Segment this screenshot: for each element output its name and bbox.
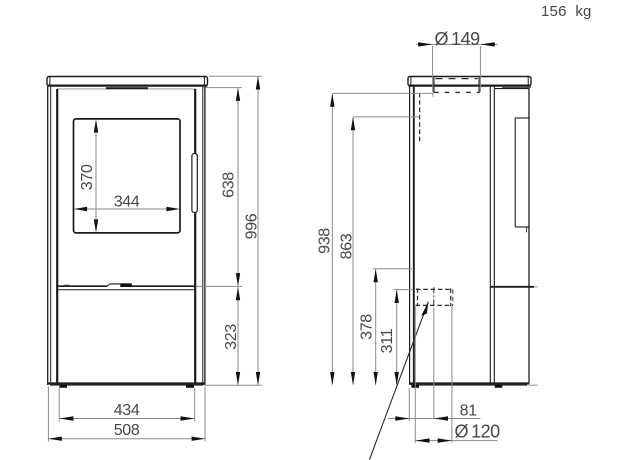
svg-text:996: 996 [243, 213, 260, 239]
svg-text:434: 434 [114, 402, 140, 419]
svg-text:311: 311 [379, 328, 396, 353]
svg-text:156 kg: 156 kg [541, 3, 592, 20]
svg-text:323: 323 [223, 324, 240, 350]
svg-text:378: 378 [358, 314, 375, 340]
svg-text:81: 81 [460, 402, 478, 419]
svg-text:863: 863 [339, 233, 356, 259]
svg-text:638: 638 [220, 172, 237, 198]
svg-text:344: 344 [114, 193, 140, 210]
svg-text:Ø 120: Ø 120 [455, 422, 501, 442]
svg-text:938: 938 [317, 228, 334, 254]
svg-text:508: 508 [114, 422, 140, 439]
svg-text:370: 370 [79, 164, 96, 190]
svg-text:Ø 149: Ø 149 [435, 29, 481, 49]
